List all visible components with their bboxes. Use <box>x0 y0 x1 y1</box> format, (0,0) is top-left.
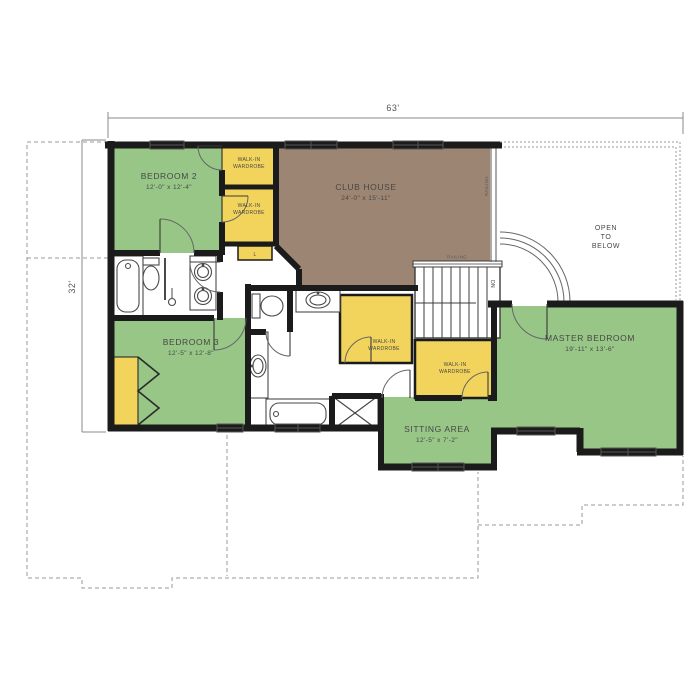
sitting-area-name: SITTING AREA <box>404 424 470 434</box>
open-to-below-boundary <box>500 142 680 302</box>
toilet-icon <box>252 294 283 318</box>
floor-plan-drawing: DN RAILING RAILING <box>0 0 700 700</box>
wiw-b2-bottom-line1: WALK-IN <box>238 203 261 209</box>
dimension-width: 63' <box>108 103 683 138</box>
open-to-below-line2: TO <box>601 234 612 241</box>
floor-plan-page: DN RAILING RAILING <box>0 0 700 700</box>
wiw-master2-line2: WARDROBE <box>439 369 471 375</box>
club-house-size: 24'-0" x 15'-11" <box>341 195 391 202</box>
wiw-master2-line1: WALK-IN <box>444 362 467 368</box>
railing-label-horizontal: RAILING <box>447 255 467 260</box>
wiw-master1-line2: WARDROBE <box>368 346 400 352</box>
closet-walk-in-bedroom2-bottom <box>222 189 276 246</box>
double-vanity-icon <box>190 256 216 310</box>
club-house-name: CLUB HOUSE <box>335 182 396 192</box>
dimension-height: 32' <box>67 140 106 432</box>
linen-closet-label: L <box>253 252 256 258</box>
wiw-master1-line1: WALK-IN <box>373 339 396 345</box>
wiw-b2-top-line1: WALK-IN <box>238 157 261 163</box>
room-bedroom2 <box>111 142 222 253</box>
sitting-area-size: 12'-5" x 7'-2" <box>416 437 458 444</box>
stairs-down-label: DN <box>489 280 495 288</box>
wiw-b2-bottom-line2: WARDROBE <box>233 210 265 216</box>
bedroom3-name: BEDROOM 3 <box>163 337 219 347</box>
dimension-width-label: 63' <box>386 103 399 113</box>
bedroom2-size: 12'-0" x 12'-4" <box>146 184 192 191</box>
wiw-b2-top-line2: WARDROBE <box>233 164 265 170</box>
vanity-top-icon <box>296 289 340 312</box>
open-to-below-line1: OPEN <box>595 225 617 232</box>
staircase: DN <box>415 266 500 338</box>
railing-label-vertical: RAILING <box>484 176 489 196</box>
master-bedroom-size: 19'-11" x 13'-6" <box>565 346 615 353</box>
bedroom2-name: BEDROOM 2 <box>141 171 197 181</box>
open-to-below-line3: BELOW <box>592 243 620 250</box>
bedroom3-size: 12'-5" x 12'-8" <box>168 350 214 357</box>
vanity-left-icon <box>249 332 268 398</box>
dimension-height-label: 32' <box>67 280 77 293</box>
master-bedroom-name: MASTER BEDROOM <box>545 333 635 343</box>
closet-walk-in-master-1 <box>340 295 412 363</box>
bathtub-icon <box>113 256 143 316</box>
toilet-icon <box>143 258 159 290</box>
